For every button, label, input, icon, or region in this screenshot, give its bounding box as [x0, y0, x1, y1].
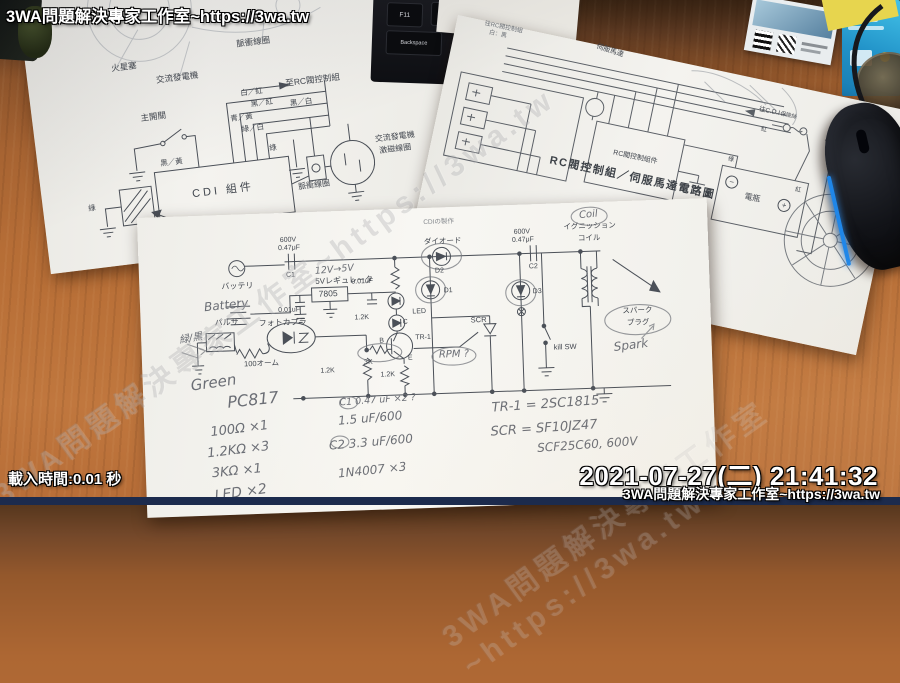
- qr-code: [752, 30, 773, 51]
- key-backspace-label: Backspace: [400, 40, 427, 47]
- key-backspace: Backspace: [385, 30, 442, 56]
- watermark-top-left: 3WA問題解決專家工作室~https://3wa.tw: [6, 3, 309, 27]
- card-text-line: [801, 48, 821, 54]
- watermark-bottom-right: 3WA問題解決專家工作室~https://3wa.tw: [623, 484, 880, 504]
- desk-photo: { "overlay": { "watermark_top": "3WA問題解決…: [0, 0, 900, 505]
- mouse-scroll-wheel: [855, 129, 870, 155]
- key-f11: F11: [386, 2, 423, 27]
- box-text-line: [848, 26, 884, 30]
- load-time-text: 載入時間:0.01 秒: [8, 468, 121, 489]
- qr-code: [776, 34, 797, 55]
- key-f11-label: F11: [399, 11, 410, 18]
